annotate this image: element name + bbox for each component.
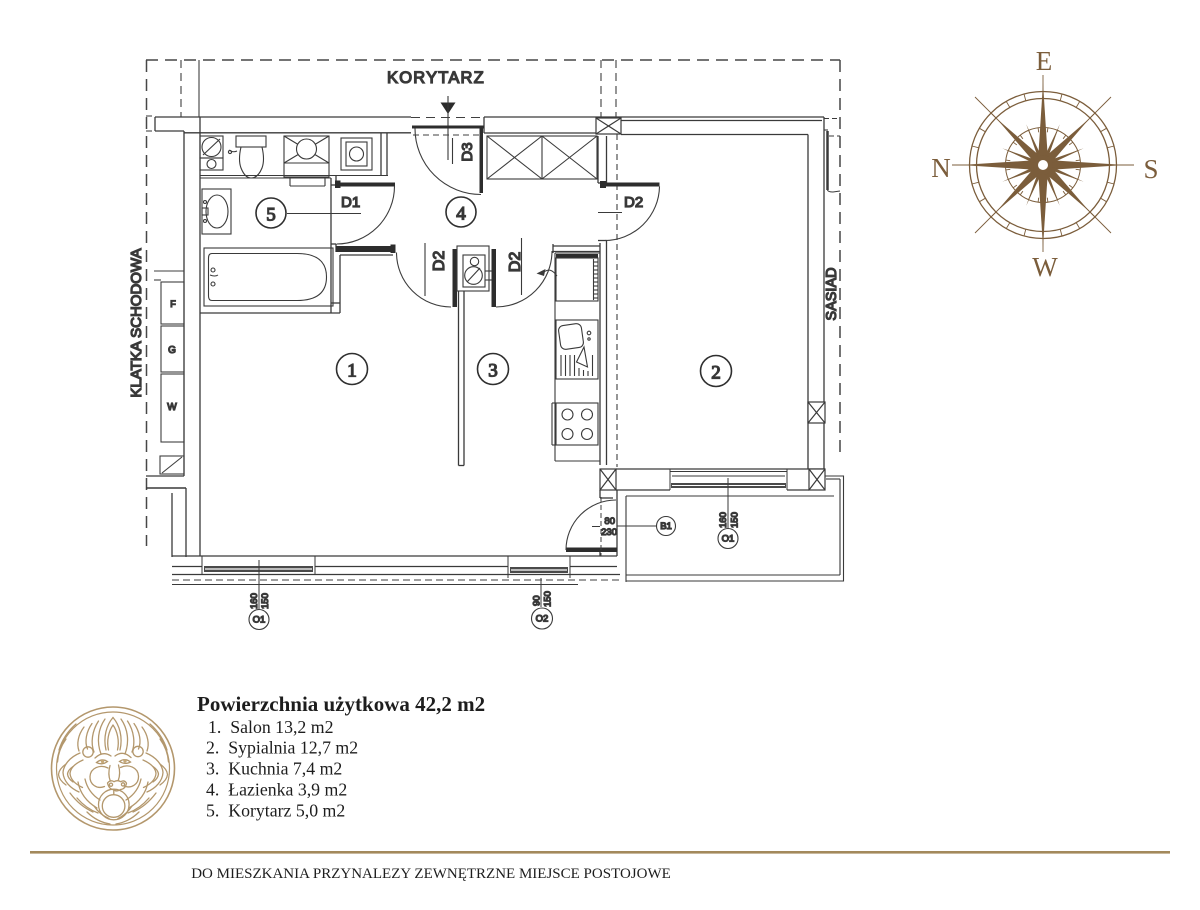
svg-text:N: N [931, 153, 951, 183]
svg-text:2. Sypialnia 12,7 m2: 2. Sypialnia 12,7 m2 [206, 738, 358, 758]
svg-text:2: 2 [711, 363, 721, 384]
svg-text:90: 90 [532, 595, 543, 606]
svg-text:G: G [168, 345, 176, 356]
svg-text:S: S [1143, 154, 1158, 184]
svg-text:W: W [167, 402, 177, 413]
svg-text:O2: O2 [536, 614, 549, 625]
svg-text:B1: B1 [660, 521, 672, 532]
svg-text:160: 160 [718, 512, 729, 528]
svg-text:SASIAD: SASIAD [824, 267, 840, 320]
svg-text:150: 150 [730, 512, 741, 528]
svg-text:5: 5 [266, 205, 276, 226]
svg-text:D1: D1 [341, 194, 360, 211]
svg-text:D2: D2 [507, 252, 524, 273]
svg-text:D2: D2 [431, 251, 448, 272]
svg-text:DO MIESZKANIA PRZYNALEZY ZEWNĘ: DO MIESZKANIA PRZYNALEZY ZEWNĘTRZNE MIEJ… [191, 866, 671, 882]
svg-text:O1: O1 [253, 615, 266, 626]
svg-text:150: 150 [260, 593, 271, 609]
svg-text:3: 3 [488, 361, 498, 382]
svg-text:3. Kuchnia 7,4 m2: 3. Kuchnia 7,4 m2 [206, 759, 342, 779]
svg-text:160: 160 [249, 593, 260, 609]
svg-text:Powierzchnia użytkowa 42,2 m2: Powierzchnia użytkowa 42,2 m2 [197, 692, 485, 716]
svg-text:80: 80 [604, 516, 615, 527]
svg-text:KORYTARZ: KORYTARZ [387, 69, 485, 87]
svg-text:1: 1 [347, 361, 357, 382]
svg-text:230: 230 [601, 527, 617, 538]
svg-text:W: W [1032, 252, 1058, 282]
svg-text:O1: O1 [722, 534, 735, 545]
svg-text:E: E [1036, 46, 1053, 76]
svg-text:150: 150 [543, 591, 554, 607]
svg-text:4: 4 [456, 204, 466, 225]
svg-text:1. Salon 13,2 m2: 1. Salon 13,2 m2 [208, 717, 333, 737]
svg-text:KLATKA SCHODOWA: KLATKA SCHODOWA [128, 248, 145, 397]
svg-text:D2: D2 [624, 194, 643, 211]
svg-text:D3: D3 [459, 142, 476, 161]
svg-text:5. Korytarz 5,0 m2: 5. Korytarz 5,0 m2 [206, 801, 345, 821]
svg-text:F: F [170, 299, 176, 309]
svg-text:4. Łazienka 3,9 m2: 4. Łazienka 3,9 m2 [206, 780, 347, 800]
